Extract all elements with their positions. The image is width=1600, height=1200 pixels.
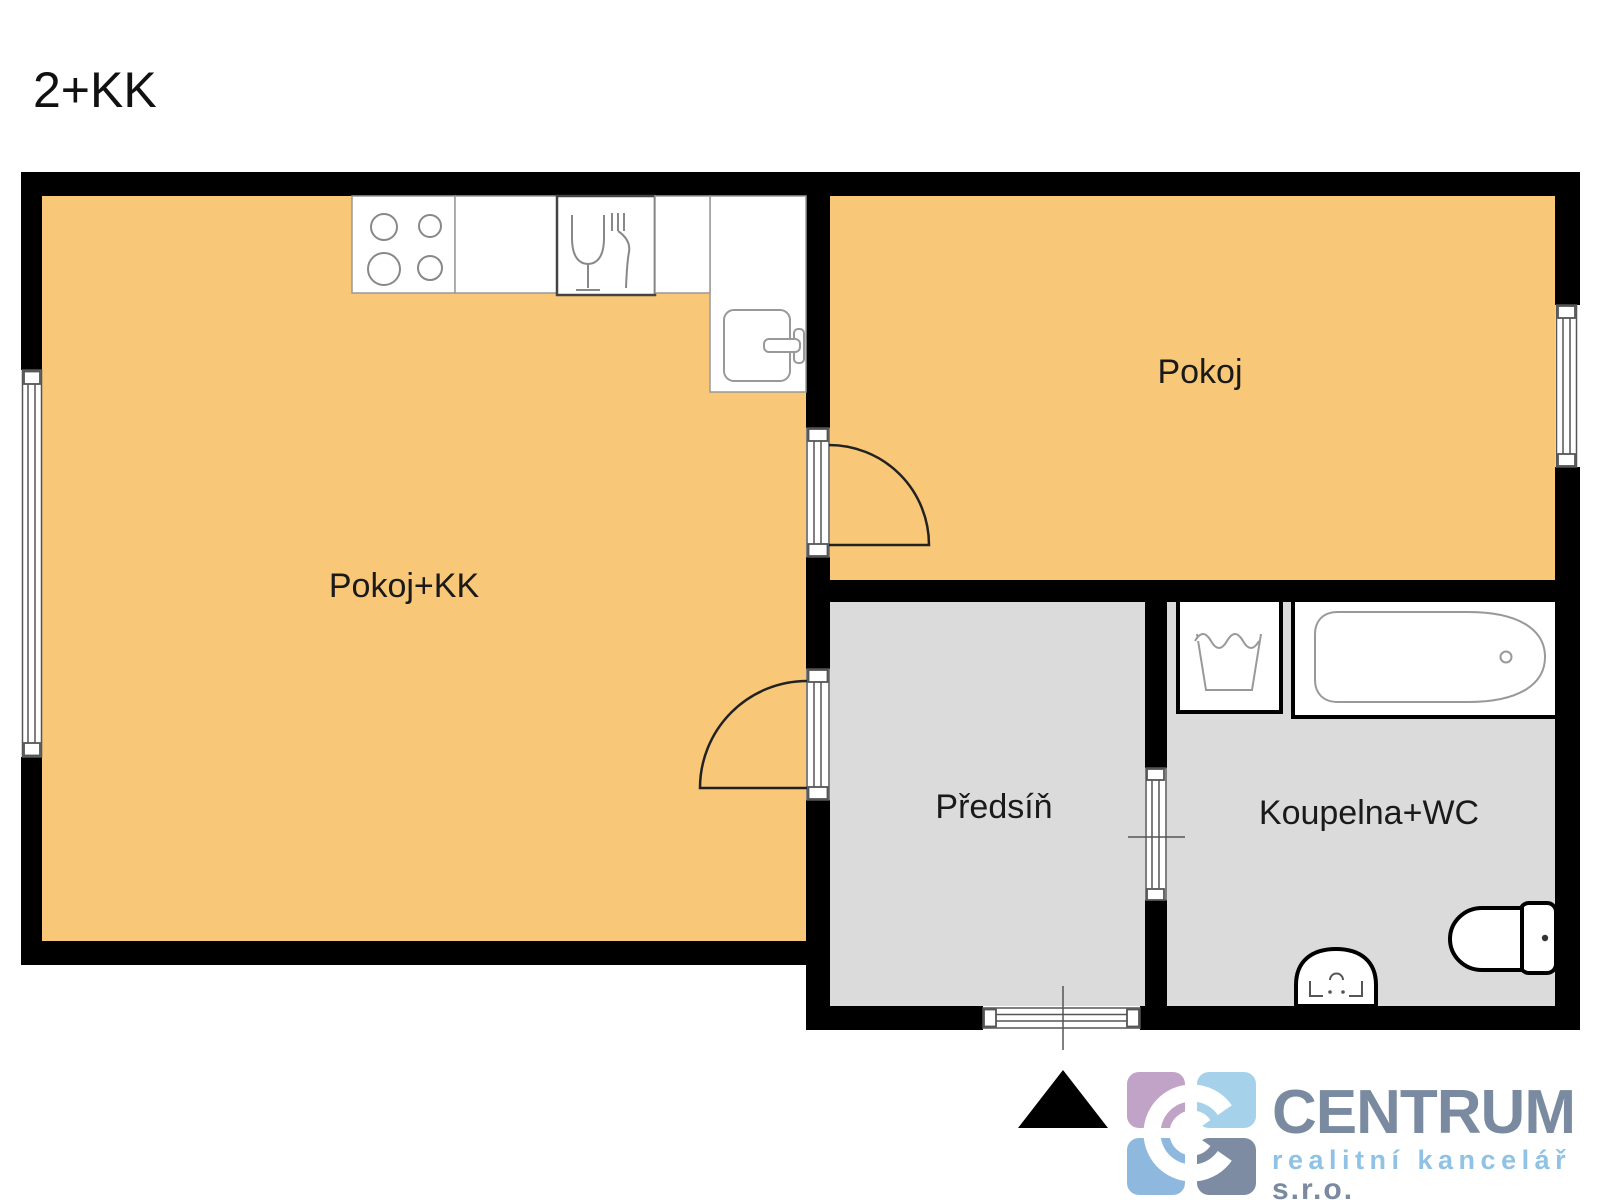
window-cap <box>24 743 40 756</box>
window-frame <box>1557 305 1577 467</box>
door-jamb <box>983 1008 1140 1028</box>
door-jamb-cap <box>984 1010 996 1027</box>
door-jamb-cap <box>1147 769 1164 780</box>
room-label-bathroom: Koupelna+WC <box>1259 794 1479 832</box>
kitchen-counter <box>455 196 557 293</box>
wall-left-upper <box>21 172 42 370</box>
door-jamb-cap <box>809 429 828 441</box>
door-jamb-cap <box>1127 1010 1139 1027</box>
logo-tagline-text: realitní kancelář <box>1272 1145 1571 1175</box>
stove-counter <box>352 196 455 293</box>
window-cap <box>1558 454 1575 466</box>
entrance-arrow-icon <box>1018 1070 1108 1128</box>
door-jamb <box>807 669 829 800</box>
wall-center-vertical-lower <box>806 800 830 1030</box>
window-frame <box>23 370 42 757</box>
door-jamb-cap <box>1147 889 1164 900</box>
wall-bottom-bathroom <box>1140 1006 1580 1030</box>
door-jamb <box>807 428 829 557</box>
logo-brand-text: CENTRUM <box>1272 1078 1575 1147</box>
toilet-icon <box>1450 903 1556 973</box>
window-living-kitchen <box>23 370 42 757</box>
logo-c-outer-arc <box>1152 1093 1225 1173</box>
wall-bottom-hallway <box>806 1006 983 1030</box>
logo-legal-form-text: s.r.o. <box>1272 1173 1354 1200</box>
door-jamb-cap <box>809 670 828 682</box>
floor-plan-canvas: 2+KK <box>0 0 1600 1200</box>
wall-right-lower <box>1555 467 1580 1030</box>
wall-right-upper <box>1555 172 1580 305</box>
window-cap <box>24 372 40 385</box>
wall-bottom-living <box>21 941 830 965</box>
washing-machine-icon <box>1178 600 1281 712</box>
wall-top <box>21 172 1580 196</box>
door-jamb-cap <box>809 544 828 556</box>
page-title: 2+KK <box>33 62 157 118</box>
floor-plan-page: 2+KK <box>0 0 1600 1200</box>
logo-c-inner-arc <box>1176 1117 1205 1149</box>
room-label-bedroom: Pokoj <box>1157 353 1242 391</box>
kitchen-counter <box>655 196 710 293</box>
washbasin-icon <box>1296 949 1376 1006</box>
door-jamb <box>1146 768 1166 900</box>
window-cap <box>1558 306 1575 318</box>
window-bedroom <box>1557 305 1577 467</box>
wall-left-lower <box>21 757 42 965</box>
wall-center-vertical-upper <box>806 196 830 428</box>
agency-logo: CENTRUM realitní kancelář s.r.o. <box>1127 1072 1575 1200</box>
wall-center-vertical-middle <box>806 557 830 669</box>
room-label-living-kitchen: Pokoj+KK <box>329 567 480 605</box>
bathtub-icon <box>1293 600 1557 717</box>
door-jamb-cap <box>809 787 828 799</box>
wall-hallway-bathroom-upper <box>1145 580 1167 768</box>
room-label-hallway: Předsíň <box>935 788 1052 826</box>
wall-hallway-bathroom-lower <box>1145 900 1167 1030</box>
